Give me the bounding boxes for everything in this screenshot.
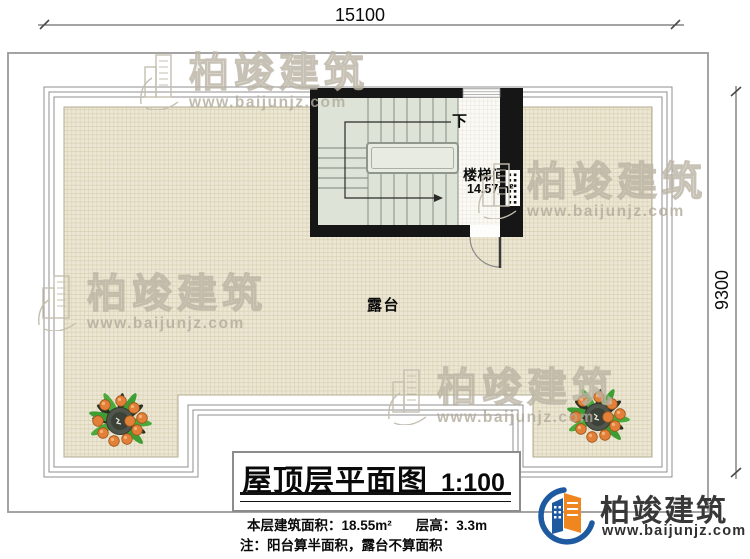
title-block: 屋顶层平面图 1:100 (232, 451, 521, 512)
dimension-width-label: 15100 (320, 5, 400, 26)
title-block-stats: 本层建筑面积：18.55m² 层高：3.3m (247, 514, 487, 534)
brand-logo: 柏竣建筑 www.baijunjz.com (534, 481, 750, 559)
brand-logo-icon (534, 481, 598, 555)
floor-plan-sheet: 15100 9300 下 楼梯间 14.57m² 露台 柏竣建筑 www.bai… (0, 0, 750, 559)
terrace-label: 露台 (367, 294, 400, 315)
floor-height-text: 层高：3.3m (416, 514, 487, 534)
stair-down-label: 下 (452, 110, 467, 131)
floor-area-text: 本层建筑面积：18.55m² (247, 514, 392, 534)
brand-website: www.baijunjz.com (602, 523, 746, 539)
stair-window (463, 89, 500, 97)
title-underline (240, 492, 511, 502)
stair-room-area: 14.57m² (467, 182, 514, 196)
dimension-height-label: 9300 (712, 258, 732, 322)
title-block-note: 注：阳台算半面积，露台不算面积 (240, 534, 443, 554)
